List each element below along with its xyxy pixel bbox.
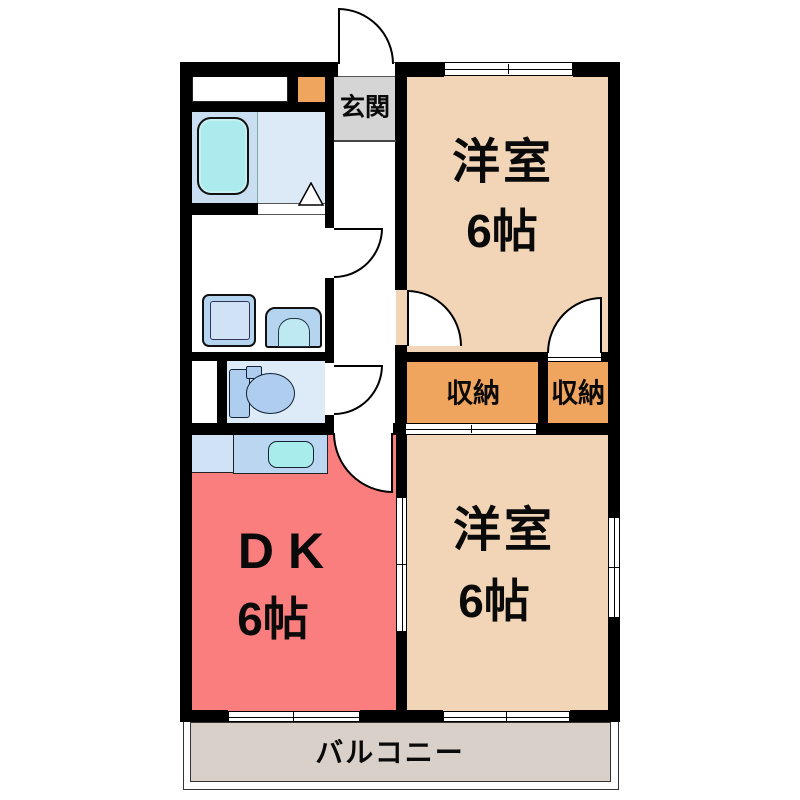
closet-box	[192, 76, 288, 102]
dk-size: 6帖	[237, 596, 309, 642]
entrance-door-swing	[338, 8, 394, 64]
kitchen-sink-icon	[268, 441, 314, 468]
genkan-label: 玄関	[340, 96, 390, 121]
dk-name: DK	[238, 526, 338, 576]
wall-hall-left-2	[325, 278, 334, 363]
wall-mid-bottom-center	[393, 423, 405, 435]
floor-plan: 玄関 洋室 6帖 収納 収納 洋室 6帖 DK 6帖 バルコニー	[0, 0, 800, 800]
wall-washroom-bottom	[180, 352, 325, 361]
entrance-threshold	[338, 62, 395, 77]
bathtub-icon	[197, 117, 249, 195]
washing-machine-drum	[210, 301, 250, 340]
wall-left	[180, 62, 192, 722]
wall-bottom-a	[180, 710, 228, 722]
storage-wide-label: 収納	[446, 381, 500, 408]
western-room-bottom-size: 6帖	[458, 578, 530, 624]
western-room-top-size: 6帖	[466, 208, 538, 254]
sliding-door-storage-narrow	[547, 352, 602, 362]
bathroom-folding-door-icon	[298, 182, 325, 206]
wall-hall-left-1	[325, 112, 334, 228]
wall-top-left	[180, 62, 338, 77]
genkan-step-line	[334, 140, 396, 142]
toilet-bowl-icon	[246, 373, 295, 414]
western-room-bottom-name: 洋室	[453, 507, 555, 555]
wall-closet-divider	[288, 76, 298, 102]
wall-hall-right-upper	[395, 62, 407, 290]
window-bottom-dk-tick	[293, 712, 294, 721]
wall-storage-divider	[538, 362, 548, 423]
balcony-label: バルコニー	[315, 739, 464, 767]
wall-storage-top-left	[395, 352, 547, 362]
wall-storage-top-right	[602, 352, 620, 362]
kitchen-counter-left	[190, 434, 234, 473]
window-bottom-dk	[228, 711, 360, 722]
sliding-door-dk-room-tick	[397, 564, 406, 565]
wall-genkan-left	[325, 62, 334, 112]
western-room-bottom-floor	[396, 433, 608, 711]
window-right-tick	[609, 567, 619, 568]
washbasin-bowl	[278, 318, 310, 347]
window-bottom-room-tick	[506, 712, 507, 721]
wall-closet-bottom	[192, 102, 334, 112]
washroom-door-swing	[334, 228, 383, 278]
wall-bottom-c	[570, 710, 620, 722]
window-top-tick	[508, 64, 509, 74]
wall-bath-bottom	[192, 203, 258, 215]
wall-mid-bottom-left	[180, 423, 333, 435]
wall-right	[608, 62, 620, 722]
sliding-door-storage-wide-tick	[471, 425, 472, 433]
shoe-cabinet	[297, 76, 328, 102]
western-room-top-name: 洋室	[452, 139, 554, 187]
wall-mid-bottom-right	[537, 423, 620, 435]
wall-toilet-niche	[217, 361, 227, 425]
storage-narrow-label: 収納	[551, 381, 605, 408]
toilet-door-swing	[334, 365, 383, 415]
